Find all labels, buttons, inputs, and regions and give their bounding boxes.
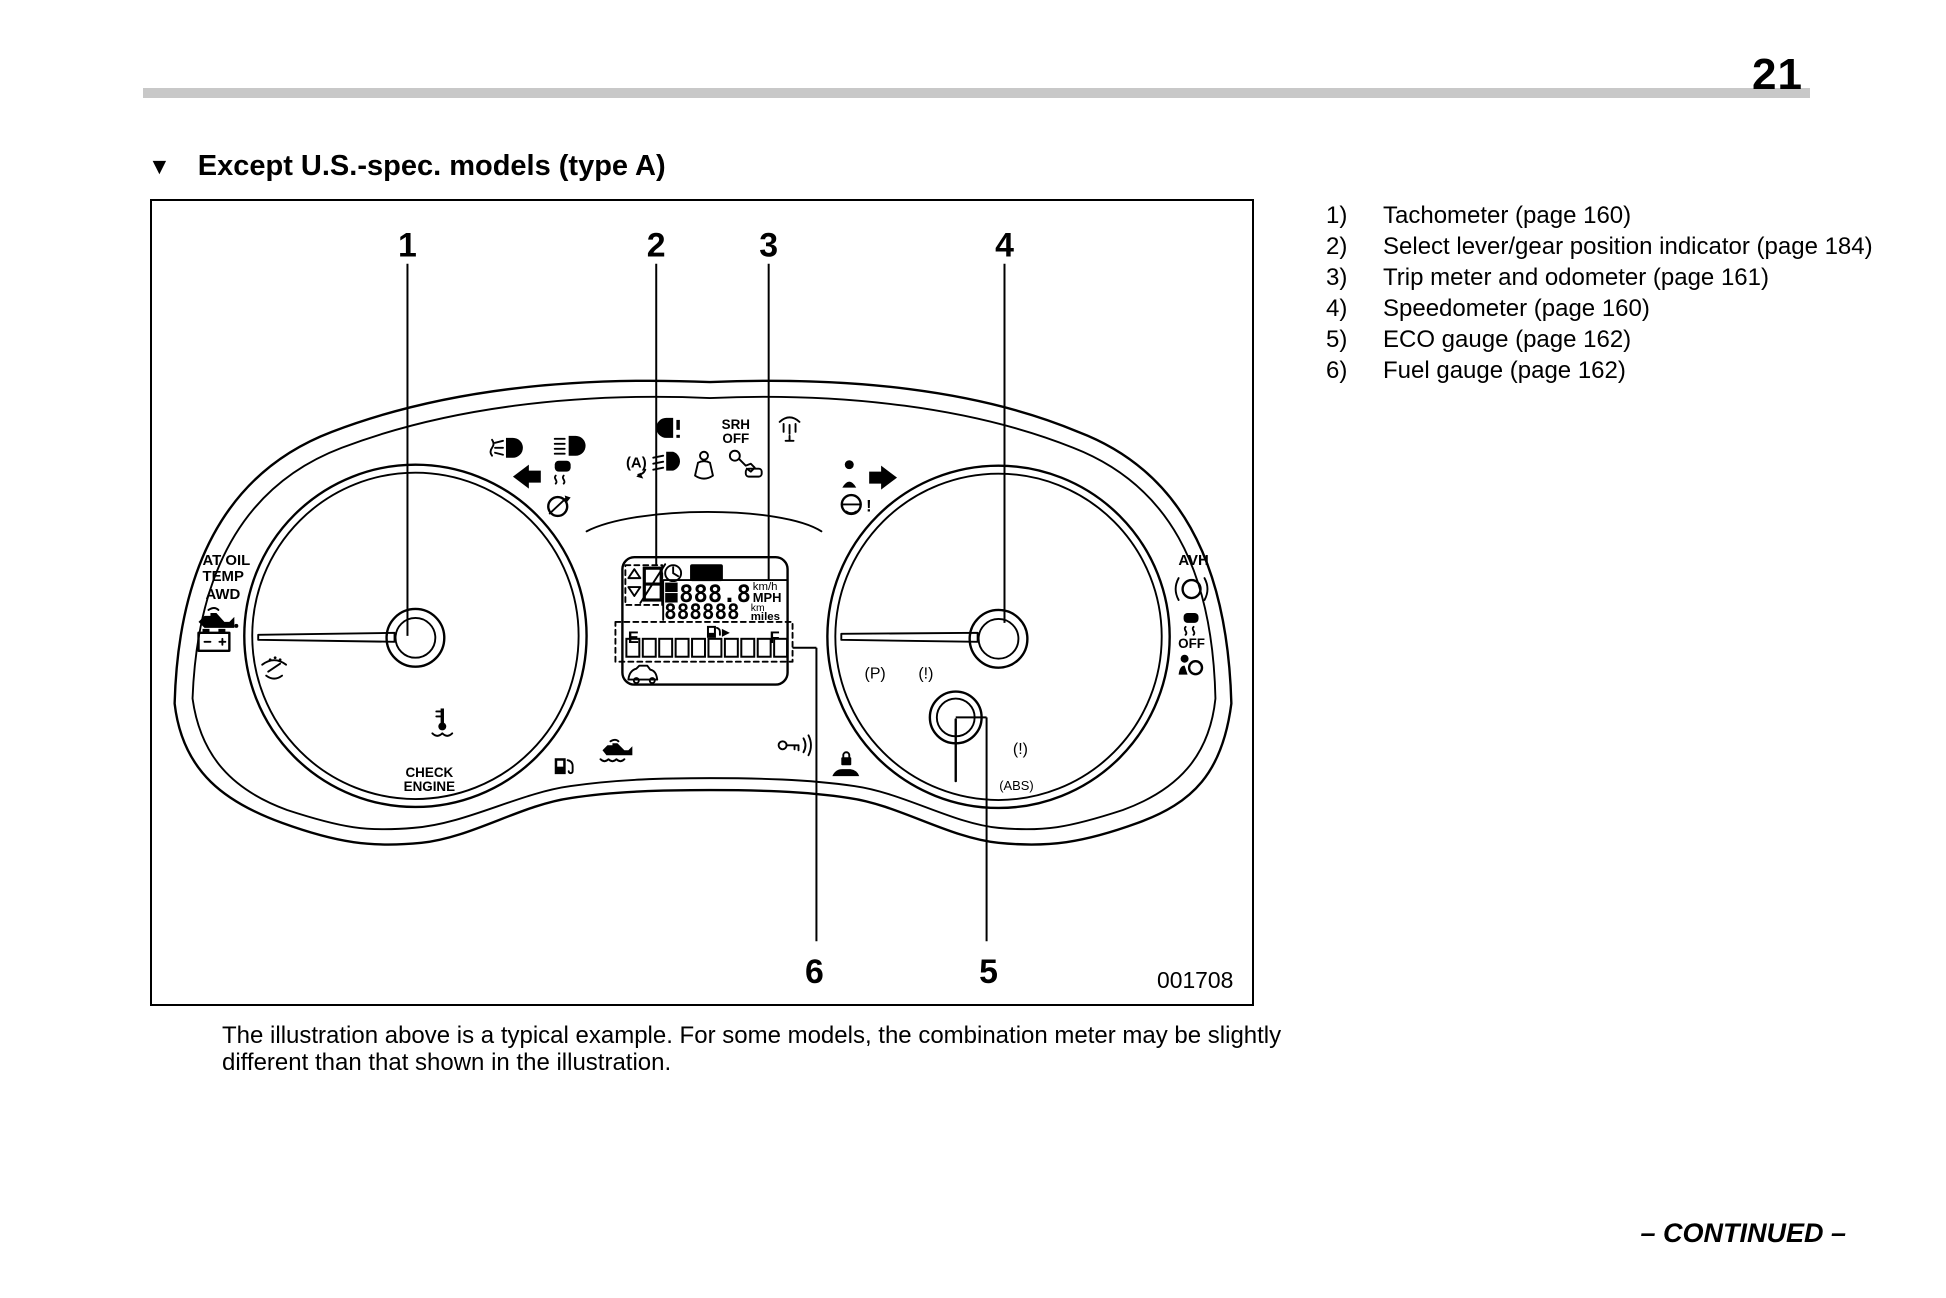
callout-5: 5 xyxy=(979,953,998,991)
legend-item: 2) Select lever/gear position indicator … xyxy=(1326,231,1886,262)
turn-signal-right-icon xyxy=(869,466,897,490)
eco-car-icon xyxy=(628,666,657,683)
brake-warning-label: (!) xyxy=(918,666,933,683)
legend-item-number: 6) xyxy=(1326,355,1383,386)
continued-label: – CONTINUED – xyxy=(1640,1218,1846,1249)
cluster-illustration: 1 2 3 4 6 5 xyxy=(152,201,1252,1004)
fuel-gauge-segments xyxy=(626,639,787,657)
auto-stop-start-icon: (A) xyxy=(626,455,647,479)
vdc-indicator-icon xyxy=(555,461,571,484)
callout-1: 1 xyxy=(398,227,417,265)
srh-off-label: SRH OFF xyxy=(722,417,750,446)
callout-3: 3 xyxy=(759,227,778,265)
battery-charge-icon xyxy=(199,629,230,651)
headlight-leveling-icon xyxy=(653,452,680,471)
esc-off-text: OFF xyxy=(1178,636,1205,651)
trip-a-label: A xyxy=(668,583,675,594)
awd-label: AWD xyxy=(205,586,240,603)
figure-code: 001708 xyxy=(1157,967,1233,993)
lamp-warning-icon xyxy=(656,418,678,438)
legend-item-label: Trip meter and odometer (page 161) xyxy=(1383,262,1886,293)
seatbelt-warning-icon xyxy=(841,460,858,487)
callout-6: 6 xyxy=(805,953,824,991)
keyless-warning-icon xyxy=(779,735,811,755)
immobilizer-icon xyxy=(730,451,762,477)
center-pod-arc xyxy=(587,512,822,531)
esc-off-icon: OFF xyxy=(1178,613,1205,651)
security-icon xyxy=(832,752,859,776)
callout-line-5 xyxy=(956,717,987,941)
lcd-display: SET A B 888.8 km/h MPH 888888 km miles E xyxy=(615,557,792,684)
section-marker-icon: ▼ xyxy=(148,155,171,178)
fuel-gauge: E F xyxy=(615,622,792,662)
legend-item-number: 4) xyxy=(1326,293,1383,324)
fog-light-icon xyxy=(491,438,523,458)
at-oil-temp-label-1: AT OIL xyxy=(202,552,250,569)
gear-position-display xyxy=(625,564,665,605)
fuel-empty-label: E xyxy=(628,629,639,647)
tachometer-needle xyxy=(258,633,394,642)
callout-2: 2 xyxy=(647,227,666,265)
speedometer-needle xyxy=(841,633,977,642)
legend-item-number: 5) xyxy=(1326,324,1383,355)
check-engine-label-1: CHECK xyxy=(405,765,453,780)
speedometer-dial xyxy=(827,466,1169,808)
legend-item: 5) ECO gauge (page 162) xyxy=(1326,324,1886,355)
shift-down-icon xyxy=(628,587,640,596)
brake-warning-label-2: (!) xyxy=(1013,741,1028,758)
srh-off-text: OFF xyxy=(722,431,749,446)
legend-item-label: Select lever/gear position indicator (pa… xyxy=(1383,231,1886,262)
at-oil-temp-label-2: TEMP xyxy=(202,568,243,585)
legend-list: 1) Tachometer (page 160) 2) Select lever… xyxy=(1326,200,1886,386)
abs-label: (ABS) xyxy=(999,778,1033,793)
figure-box: 1 2 3 4 6 5 xyxy=(150,199,1254,1006)
coolant-temp-icon xyxy=(432,708,452,735)
tachometer-dial xyxy=(244,465,586,807)
steering-excl-text: ! xyxy=(866,497,871,515)
legend-item: 3) Trip meter and odometer (page 161) xyxy=(1326,262,1886,293)
steering-warning-icon: ! xyxy=(842,495,872,515)
legend-item-label: Fuel gauge (page 162) xyxy=(1383,355,1886,386)
shift-up-icon xyxy=(628,569,640,578)
legend-item: 4) Speedometer (page 160) xyxy=(1326,293,1886,324)
legend-item: 1) Tachometer (page 160) xyxy=(1326,200,1886,231)
legend-item-number: 3) xyxy=(1326,262,1383,293)
airbag-warning-icon xyxy=(1179,655,1202,675)
deicer-icon xyxy=(780,417,800,440)
page-header-rule xyxy=(143,88,1810,98)
fuel-pump-icon xyxy=(707,626,730,638)
legend-item-number: 1) xyxy=(1326,200,1383,231)
high-beam-icon xyxy=(555,436,586,456)
odometer-value: 888888 xyxy=(664,600,739,624)
legend-item-label: Tachometer (page 160) xyxy=(1383,200,1886,231)
turn-signal-left-icon xyxy=(513,465,541,489)
srh-text: SRH xyxy=(722,417,750,432)
parking-brake-label: (P) xyxy=(865,666,886,683)
manual-page: 21 ▼ Except U.S.-spec. models (type A) xyxy=(0,0,1946,1298)
legend-item-number: 2) xyxy=(1326,231,1383,262)
auto-stop-start-text: (A) xyxy=(626,455,647,472)
oil-temp-icon xyxy=(601,740,633,761)
clock-icon xyxy=(665,565,681,581)
eco-gauge xyxy=(930,692,982,782)
washer-fluid-icon xyxy=(262,656,286,678)
low-fuel-icon xyxy=(555,758,573,774)
seat-occupant-icon xyxy=(695,452,713,479)
legend-item: 6) Fuel gauge (page 162) xyxy=(1326,355,1886,386)
figure-caption: The illustration above is a typical exam… xyxy=(222,1022,1282,1076)
callout-4: 4 xyxy=(995,227,1014,265)
section-heading: ▼ Except U.S.-spec. models (type A) xyxy=(148,150,666,183)
section-title: Except U.S.-spec. models (type A) xyxy=(198,150,666,183)
legend-item-label: ECO gauge (page 162) xyxy=(1383,324,1886,355)
set-label: SET xyxy=(693,566,720,581)
slashed-circle-icon xyxy=(548,496,570,516)
avh-label: AVH xyxy=(1178,552,1208,569)
page-number: 21 xyxy=(1752,50,1803,100)
legend-item-label: Speedometer (page 160) xyxy=(1383,293,1886,324)
check-engine-label-2: ENGINE xyxy=(404,779,456,794)
